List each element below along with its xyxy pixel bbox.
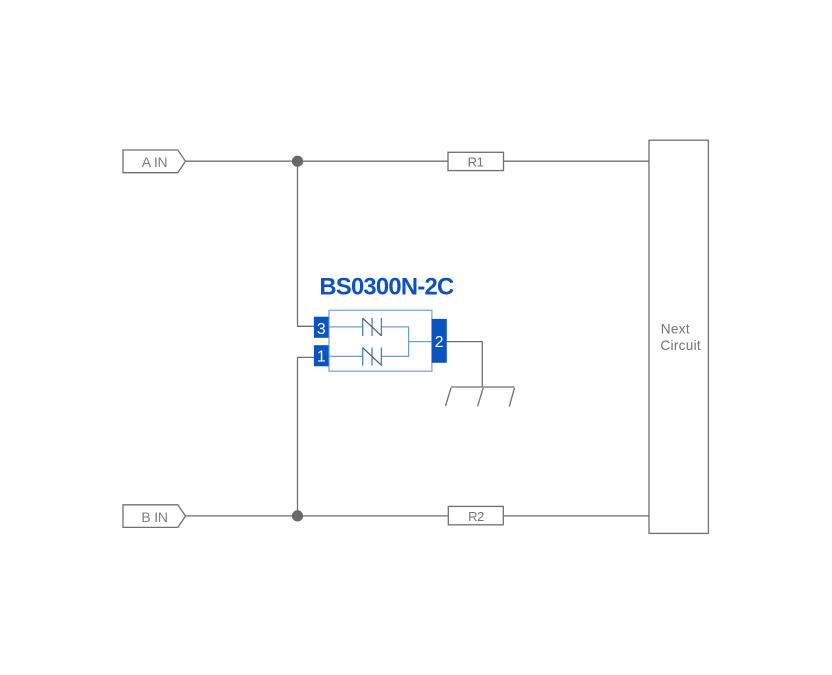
svg-text:R1: R1 [468,155,484,170]
svg-text:Next: Next [661,322,690,337]
svg-text:1: 1 [317,348,326,365]
svg-text:BS0300N-2C: BS0300N-2C [319,273,454,300]
svg-text:R2: R2 [468,509,484,524]
svg-text:Circuit: Circuit [660,338,701,353]
svg-text:A IN: A IN [142,154,168,170]
svg-text:3: 3 [317,321,326,338]
svg-text:B IN: B IN [141,509,167,525]
svg-text:2: 2 [435,334,444,351]
